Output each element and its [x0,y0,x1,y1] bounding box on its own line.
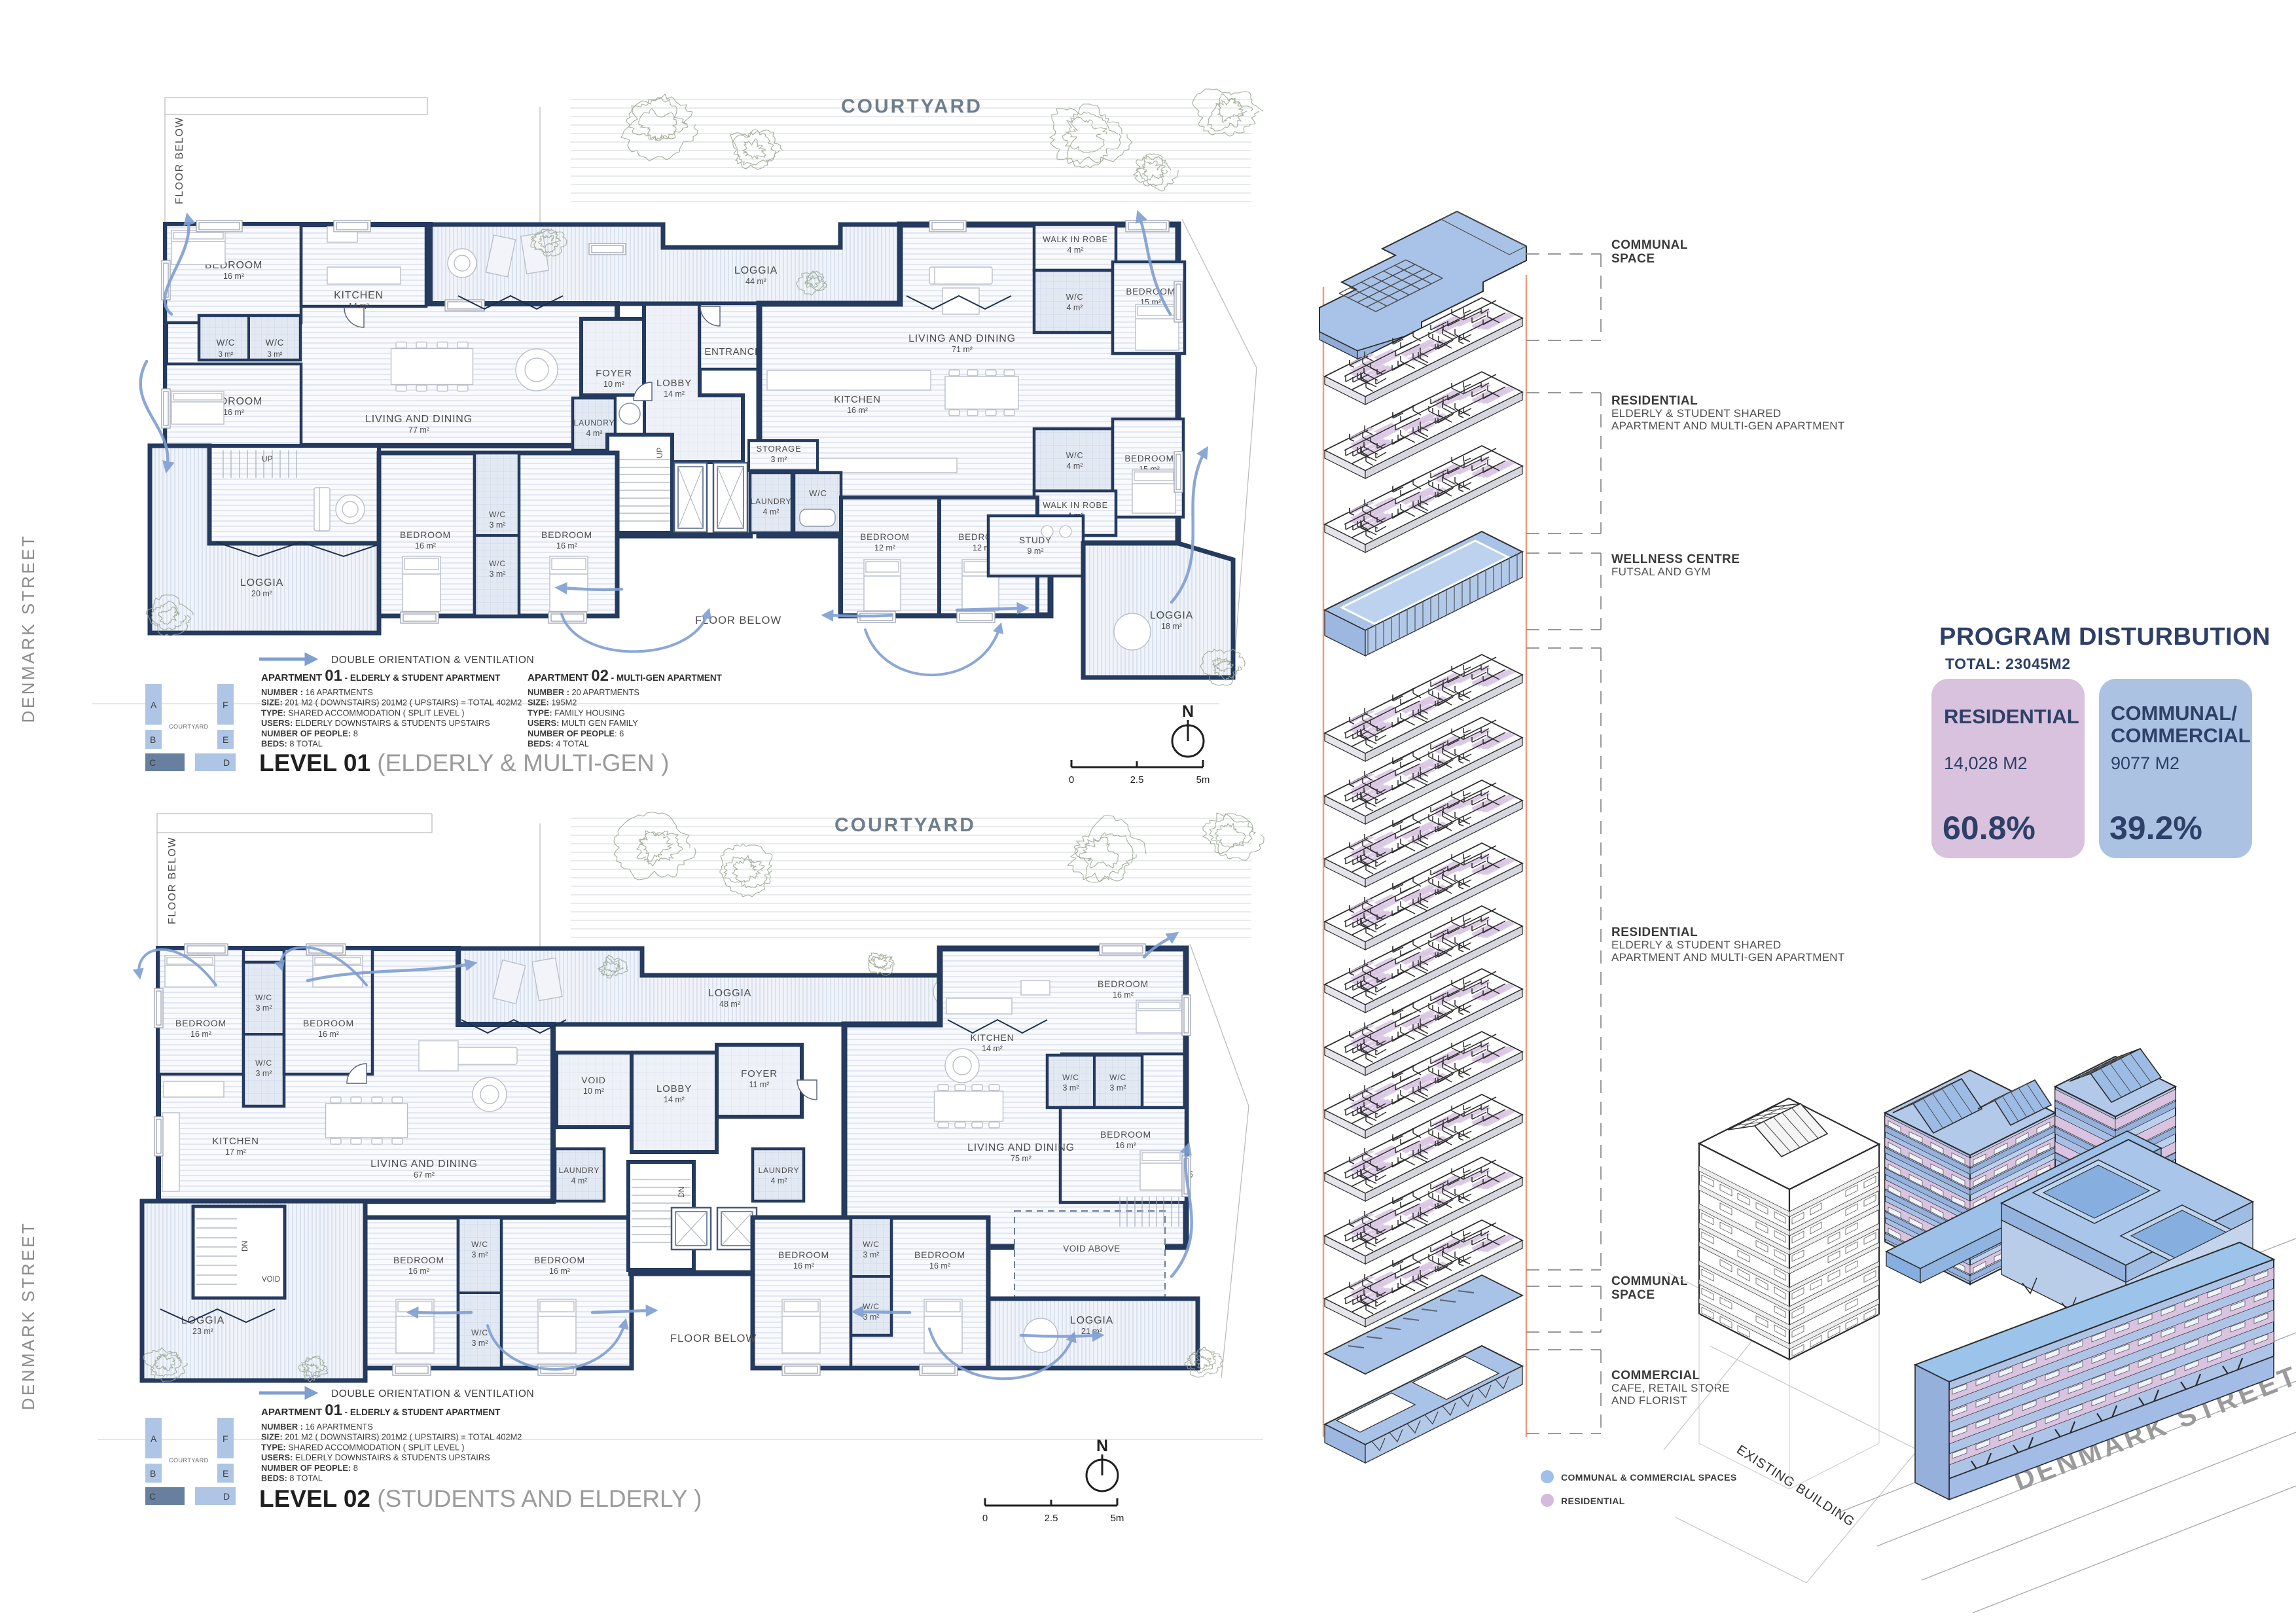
svg-text:16 m²: 16 m² [223,272,244,281]
svg-text:16 m²: 16 m² [223,408,244,417]
svg-text:TYPE: SHARED ACCOMMODATION ( S: TYPE: SHARED ACCOMMODATION ( SPLIT LEVEL… [261,1442,465,1452]
svg-text:KITCHEN: KITCHEN [834,394,880,405]
svg-text:BEDROOM: BEDROOM [914,1250,965,1260]
svg-text:C: C [149,757,156,768]
svg-text:20 m²: 20 m² [251,589,272,598]
svg-text:2.5: 2.5 [1130,774,1144,785]
svg-text:A: A [151,700,157,710]
svg-text:APARTMENT AND MULTI-GEN APARTM: APARTMENT AND MULTI-GEN APARTMENT [1611,420,1845,432]
svg-text:KITCHEN: KITCHEN [970,1032,1014,1043]
svg-text:3 m²: 3 m² [1110,1083,1126,1092]
svg-text:DOUBLE ORIENTATION & VENTILATI: DOUBLE ORIENTATION & VENTILATION [331,655,534,666]
svg-text:TOTAL: 23045M2: TOTAL: 23045M2 [1945,655,2070,672]
svg-text:FLOOR BELOW: FLOOR BELOW [167,837,178,924]
svg-text:COURTYARD: COURTYARD [834,814,976,836]
svg-text:BEDROOM: BEDROOM [175,1018,226,1028]
svg-text:75 m²: 75 m² [1011,1154,1031,1163]
svg-text:4 m²: 4 m² [1067,245,1084,255]
svg-text:NUMBER OF PEOPLE: 6: NUMBER OF PEOPLE: 6 [528,729,624,738]
svg-text:BEDROOM: BEDROOM [393,1255,444,1265]
svg-text:COMMUNAL & COMMERCIAL SPACES: COMMUNAL & COMMERCIAL SPACES [1561,1472,1737,1483]
svg-text:NUMBER OF PEOPLE: 8: NUMBER OF PEOPLE: 8 [261,1463,358,1473]
svg-text:W/C: W/C [489,510,506,519]
svg-text:18 m²: 18 m² [1161,622,1182,631]
svg-text:BEDROOM: BEDROOM [1126,287,1175,297]
svg-text:SIZE: 195M2: SIZE: 195M2 [528,698,577,708]
svg-text:DOUBLE ORIENTATION & VENTILATI: DOUBLE ORIENTATION & VENTILATION [331,1388,534,1399]
svg-text:DN: DN [242,1240,249,1252]
svg-text:D: D [223,757,230,768]
svg-text:LOGGIA: LOGGIA [240,577,283,588]
svg-text:3 m²: 3 m² [472,1250,488,1259]
svg-text:16 m²: 16 m² [190,1030,211,1039]
svg-text:9 m²: 9 m² [1028,547,1044,556]
svg-text:APARTMENT 01 - ELDERLY & STUDE: APARTMENT 01 - ELDERLY & STUDENT APARTME… [261,667,501,685]
svg-text:ELDERLY & STUDENT SHARED: ELDERLY & STUDENT SHARED [1611,939,1781,951]
svg-text:W/C: W/C [255,993,272,1002]
svg-text:LOBBY: LOBBY [656,1083,692,1094]
svg-text:NUMBER : 16 APARTMENTS: NUMBER : 16 APARTMENTS [261,687,373,697]
svg-text:LEVEL 01 (ELDERLY & MULTI-GEN: LEVEL 01 (ELDERLY & MULTI-GEN ) [259,749,669,776]
svg-text:COMMUNAL: COMMUNAL [1611,238,1688,252]
svg-text:USERS: ELDERLY DOWNSTAIRS & ST: USERS: ELDERLY DOWNSTAIRS & STUDENTS UPS… [261,718,490,728]
svg-text:WALK IN ROBE: WALK IN ROBE [1043,235,1107,244]
svg-text:F: F [223,700,228,710]
svg-text:BEDS: 4 TOTAL: BEDS: 4 TOTAL [528,739,589,749]
svg-text:44 m²: 44 m² [745,277,766,286]
svg-text:3 m²: 3 m² [1063,1083,1079,1092]
svg-text:4 m²: 4 m² [571,1176,588,1185]
svg-text:12 m²: 12 m² [874,543,895,552]
svg-text:W/C: W/C [266,338,285,348]
svg-text:APARTMENT 02 - MULTI-GEN APART: APARTMENT 02 - MULTI-GEN APARTMENT [528,667,723,685]
svg-text:FOYER: FOYER [741,1068,778,1079]
svg-text:DENMARK STREET: DENMARK STREET [18,1221,38,1411]
svg-text:0: 0 [982,1513,988,1524]
svg-text:FOYER: FOYER [596,368,632,379]
svg-text:FLOOR BELOW: FLOOR BELOW [174,117,185,204]
svg-text:3 m²: 3 m² [771,455,787,464]
svg-text:COURTYARD: COURTYARD [169,723,209,730]
svg-text:23 m²: 23 m² [192,1327,213,1336]
svg-text:NUMBER : 16 APARTMENTS: NUMBER : 16 APARTMENTS [261,1422,373,1432]
svg-text:LOGGIA: LOGGIA [708,988,751,999]
svg-text:LAUNDRY: LAUNDRY [574,418,615,427]
svg-text:USERS: ELDERLY DOWNSTAIRS & ST: USERS: ELDERLY DOWNSTAIRS & STUDENTS UPS… [261,1453,490,1462]
svg-text:W/C: W/C [255,1058,272,1068]
svg-text:F: F [223,1434,228,1444]
svg-text:16 m²: 16 m² [1113,990,1134,1000]
svg-text:TYPE: FAMILY HOUSING: TYPE: FAMILY HOUSING [528,708,625,717]
svg-text:14 m²: 14 m² [982,1044,1003,1053]
svg-text:16 m²: 16 m² [415,541,436,550]
svg-text:W/C: W/C [489,559,506,568]
svg-text:W/C: W/C [1066,451,1084,460]
svg-text:COMMERCIAL: COMMERCIAL [2111,724,2251,747]
svg-text:VOID: VOID [581,1075,605,1085]
svg-text:UP: UP [655,447,664,458]
svg-text:LOGGIA: LOGGIA [734,265,778,276]
svg-text:W/C: W/C [863,1302,880,1311]
svg-text:PROGRAM DISTURBUTION: PROGRAM DISTURBUTION [1939,623,2270,651]
svg-text:4 m²: 4 m² [1067,461,1083,471]
svg-text:W/C: W/C [1066,293,1084,302]
svg-text:RESIDENTIAL: RESIDENTIAL [1561,1496,1625,1506]
svg-text:4 m²: 4 m² [771,1176,787,1185]
svg-text:COMMUNAL/: COMMUNAL/ [2111,702,2237,725]
svg-text:D: D [223,1491,230,1502]
svg-text:3 m²: 3 m² [256,1069,272,1078]
svg-text:VOID: VOID [262,1276,280,1284]
svg-text:LIVING AND DINING: LIVING AND DINING [370,1159,478,1170]
svg-text:LOGGIA: LOGGIA [1070,1315,1113,1326]
svg-text:BEDS: 8 TOTAL: BEDS: 8 TOTAL [261,1473,323,1483]
svg-text:W/C: W/C [217,338,236,348]
svg-text:STORAGE: STORAGE [757,444,802,454]
svg-text:14 m²: 14 m² [664,389,685,399]
svg-text:BEDROOM: BEDROOM [400,530,451,540]
svg-text:77 m²: 77 m² [408,425,429,435]
svg-text:LIVING AND DINING: LIVING AND DINING [365,414,473,425]
svg-text:9077 M2: 9077 M2 [2111,753,2179,773]
svg-text:SPACE: SPACE [1611,252,1655,266]
svg-text:N: N [1182,702,1194,721]
svg-text:14,028 M2: 14,028 M2 [1944,753,2028,773]
svg-text:16 m²: 16 m² [793,1261,814,1271]
svg-text:RESIDENTIAL: RESIDENTIAL [1944,705,2079,728]
svg-text:N: N [1096,1437,1108,1455]
svg-text:3 m²: 3 m² [490,520,506,530]
svg-text:DENMARK STREET: DENMARK STREET [18,534,38,723]
svg-text:BEDROOM: BEDROOM [303,1018,354,1028]
svg-text:LIVING AND DINING: LIVING AND DINING [908,333,1016,344]
svg-text:B: B [150,1468,156,1479]
svg-text:FUTSAL AND GYM: FUTSAL AND GYM [1611,566,1711,578]
svg-text:4 m²: 4 m² [763,507,780,516]
svg-text:39.2%: 39.2% [2109,810,2202,846]
svg-text:BEDROOM: BEDROOM [778,1250,829,1260]
svg-text:ELDERLY & STUDENT SHARED: ELDERLY & STUDENT SHARED [1611,407,1781,420]
svg-text:2.5: 2.5 [1045,1513,1058,1524]
svg-text:11 m²: 11 m² [749,1080,769,1089]
svg-text:LIVING AND DINING: LIVING AND DINING [967,1142,1075,1153]
svg-text:5m: 5m [1111,1513,1124,1524]
svg-text:LAUNDRY: LAUNDRY [751,497,792,506]
svg-text:KITCHEN: KITCHEN [212,1136,259,1147]
svg-text:RESIDENTIAL: RESIDENTIAL [1611,394,1698,408]
svg-text:LOGGIA: LOGGIA [1150,610,1193,621]
svg-text:LAUNDRY: LAUNDRY [759,1166,800,1175]
svg-text:A: A [151,1434,157,1444]
svg-text:KITCHEN: KITCHEN [334,290,384,301]
svg-text:NUMBER : 20 APARTMENTS: NUMBER : 20 APARTMENTS [528,687,639,697]
svg-text:67 m²: 67 m² [414,1170,435,1180]
svg-text:W/C: W/C [809,488,827,498]
svg-text:16 m²: 16 m² [408,1267,429,1276]
svg-text:BEDROOM: BEDROOM [1098,979,1149,989]
svg-text:W/C: W/C [863,1240,880,1249]
svg-text:APARTMENT 01 - ELDERLY & STUDE: APARTMENT 01 - ELDERLY & STUDENT APARTME… [261,1401,501,1419]
svg-text:FLOOR BELOW: FLOOR BELOW [670,1333,757,1344]
svg-text:60.8%: 60.8% [1943,810,2036,846]
svg-text:3 m²: 3 m² [256,1003,272,1013]
svg-text:3 m²: 3 m² [863,1312,880,1322]
svg-text:WELLNESS CENTRE: WELLNESS CENTRE [1611,552,1740,566]
svg-text:16 m²: 16 m² [929,1261,950,1271]
svg-text:CAFE, RETAIL STORE: CAFE, RETAIL STORE [1611,1382,1730,1394]
svg-text:SIZE: 201 M2 ( DOWNSTAIRS) 201: SIZE: 201 M2 ( DOWNSTAIRS) 201M2 ( UPSTA… [261,698,522,708]
svg-text:DN: DN [677,1187,686,1198]
svg-text:NUMBER OF PEOPLE: 8: NUMBER OF PEOPLE: 8 [261,729,358,738]
svg-text:B: B [150,734,156,745]
svg-text:W/C: W/C [1109,1073,1126,1082]
svg-text:16 m²: 16 m² [556,541,577,550]
svg-text:LAUNDRY: LAUNDRY [559,1166,600,1175]
svg-text:AND FLORIST: AND FLORIST [1611,1394,1687,1407]
svg-text:48 m²: 48 m² [719,1000,740,1009]
svg-text:W/C: W/C [471,1240,488,1249]
svg-text:SIZE: 201 M2 ( DOWNSTAIRS) 201: SIZE: 201 M2 ( DOWNSTAIRS) 201M2 ( UPSTA… [261,1432,522,1442]
svg-text:UP: UP [262,454,273,463]
svg-text:USERS: MULTI GEN FAMILY: USERS: MULTI GEN FAMILY [528,718,638,728]
svg-text:LEVEL 02 (STUDENTS AND ELDERLY: LEVEL 02 (STUDENTS AND ELDERLY ) [259,1485,702,1512]
svg-text:BEDROOM: BEDROOM [860,532,909,542]
svg-text:5m: 5m [1196,774,1210,785]
svg-text:ENTRANCE: ENTRANCE [704,346,761,357]
svg-text:BEDROOM: BEDROOM [541,530,592,540]
svg-text:VOID ABOVE: VOID ABOVE [1063,1244,1121,1254]
svg-text:3 m²: 3 m² [863,1250,880,1259]
svg-text:APARTMENT AND MULTI-GEN APARTM: APARTMENT AND MULTI-GEN APARTMENT [1611,951,1845,964]
svg-text:COMMERCIAL: COMMERCIAL [1611,1369,1700,1382]
svg-text:BEDROOM: BEDROOM [1124,454,1174,463]
svg-text:SPACE: SPACE [1611,1288,1655,1302]
svg-text:TYPE: SHARED ACCOMMODATION ( S: TYPE: SHARED ACCOMMODATION ( SPLIT LEVEL… [261,708,465,717]
svg-text:W/C: W/C [1062,1073,1079,1082]
svg-text:BEDS: 8 TOTAL: BEDS: 8 TOTAL [261,739,323,749]
svg-text:3 m²: 3 m² [219,351,234,359]
svg-text:17 m²: 17 m² [225,1147,246,1157]
svg-text:10 m²: 10 m² [583,1087,604,1096]
svg-text:RESIDENTIAL: RESIDENTIAL [1611,926,1698,939]
svg-text:E: E [223,734,228,745]
svg-text:C: C [149,1491,156,1502]
svg-text:COURTYARD: COURTYARD [169,1457,209,1464]
svg-text:3 m²: 3 m² [268,351,283,359]
svg-text:WALK IN ROBE: WALK IN ROBE [1043,501,1107,510]
svg-text:COURTYARD: COURTYARD [841,96,982,117]
svg-text:4 m²: 4 m² [1067,303,1083,312]
svg-text:10 m²: 10 m² [603,380,624,389]
svg-text:BEDROOM: BEDROOM [534,1255,585,1265]
svg-text:E: E [223,1468,228,1479]
svg-text:LOBBY: LOBBY [656,378,692,389]
svg-text:16 m²: 16 m² [318,1030,339,1039]
svg-text:16 m²: 16 m² [1115,1141,1136,1150]
svg-text:LOGGIA: LOGGIA [181,1315,224,1326]
svg-text:4 m²: 4 m² [586,429,603,438]
svg-text:BEDROOM: BEDROOM [1100,1129,1151,1140]
svg-text:3 m²: 3 m² [472,1339,488,1348]
svg-text:16 m²: 16 m² [847,406,868,415]
svg-text:W/C: W/C [471,1328,488,1337]
svg-text:14 m²: 14 m² [664,1095,685,1104]
svg-text:71 m²: 71 m² [952,345,973,354]
svg-text:3 m²: 3 m² [490,569,506,579]
svg-text:0: 0 [1069,774,1074,785]
svg-text:16 m²: 16 m² [549,1267,570,1276]
svg-text:FLOOR BELOW: FLOOR BELOW [695,615,781,626]
